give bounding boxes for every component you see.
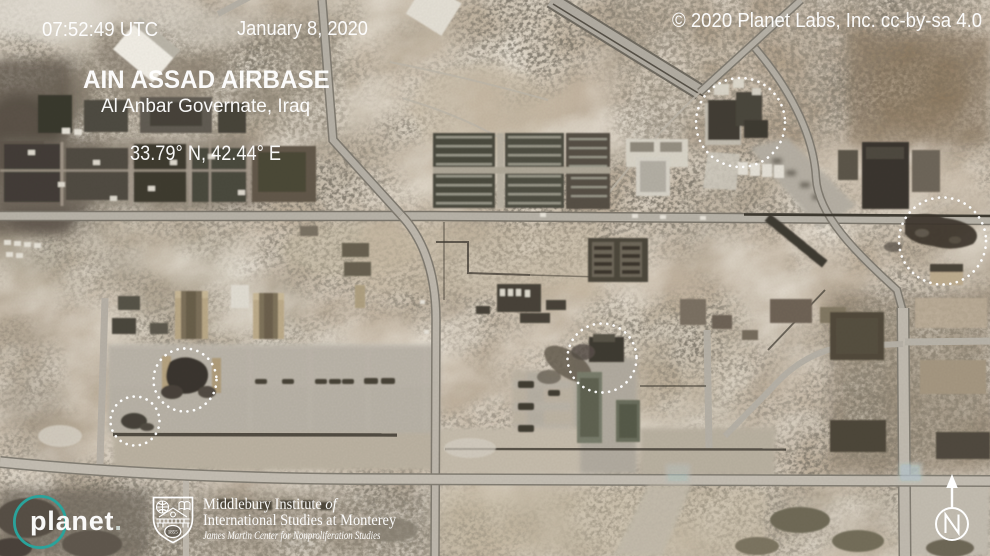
svg-text:1855: 1855: [168, 531, 179, 536]
